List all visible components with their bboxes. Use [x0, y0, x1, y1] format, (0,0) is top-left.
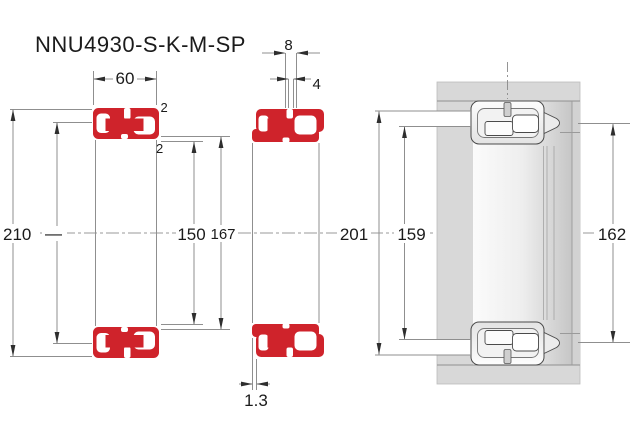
dim-width: 60 — [116, 69, 135, 88]
dim-inner-raceway-diameter: 167 — [210, 226, 235, 243]
mounted-bearing-figure — [433, 62, 580, 384]
left-bearing-section-bottom — [93, 327, 159, 358]
dim-outer-raceway-dash: — — [45, 224, 62, 243]
dim-outer-diameter: 210 — [3, 225, 31, 244]
bearing-drawing-page: NNU4930-S-K-M-SP 60 8 4 2 2 210 — 150 16… — [0, 0, 640, 440]
middle-bearing-section-top — [252, 109, 324, 143]
drawing-title: NNU4930-S-K-M-SP — [35, 32, 246, 57]
dim-face-offset: 1.3 — [244, 391, 268, 410]
dim-outer-ring-raceway-diameter: 201 — [340, 225, 368, 244]
bearing-drawing: NNU4930-S-K-M-SP 60 8 4 2 2 210 — 150 16… — [0, 0, 640, 440]
dim-lube-groove-width: 8 — [284, 37, 292, 54]
dim-lube-hole-diameter: 4 — [313, 76, 321, 93]
dim-shaft-shoulder-diameter: 159 — [397, 225, 425, 244]
dim-recess-top: 2 — [161, 100, 168, 115]
middle-bearing-section-bottom — [252, 324, 324, 358]
left-bearing-section-top — [93, 108, 159, 139]
dim-bore-diameter: 150 — [177, 225, 205, 244]
dim-abutment-diameter: 162 — [598, 225, 626, 244]
dim-recess-bottom: 2 — [156, 141, 163, 156]
